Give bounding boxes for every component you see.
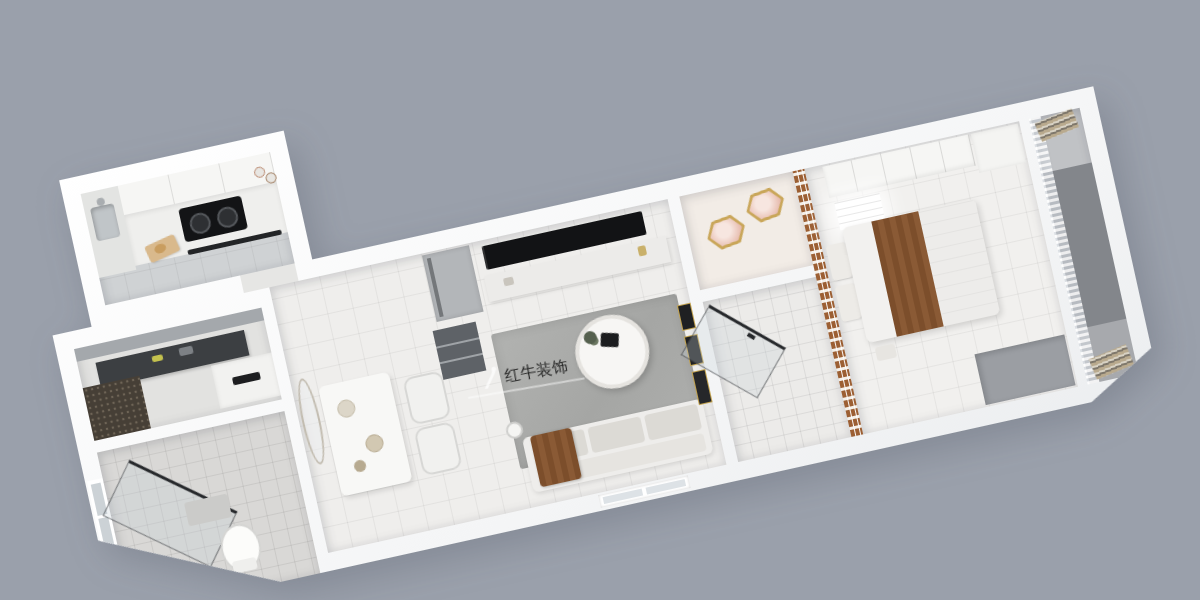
apartment-walls: 红牛装饰 xyxy=(20,0,1160,600)
rattan-cabinet xyxy=(83,376,151,441)
study-floor xyxy=(679,171,813,290)
apartment-floorplan: 红牛装饰 xyxy=(20,0,1160,600)
render-stage: 红牛装饰 xyxy=(0,0,1200,600)
watermark-logo-icon xyxy=(478,365,502,392)
